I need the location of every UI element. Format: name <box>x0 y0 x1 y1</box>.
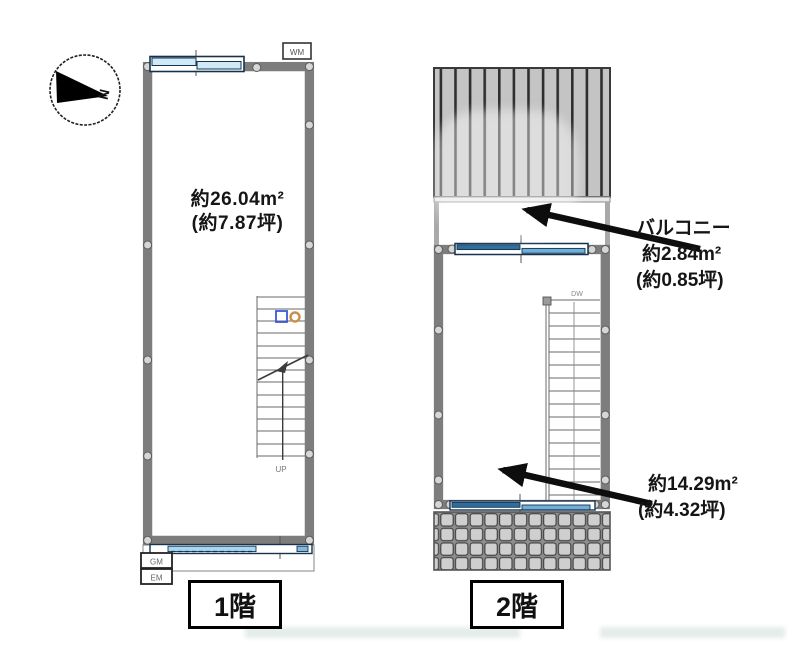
balcony-wall-right <box>605 202 610 249</box>
watermark-text-right <box>600 627 785 638</box>
compass-icon: N <box>42 46 128 132</box>
floor-label-1f-text: 1階 <box>214 585 256 624</box>
balcony-label-group: バルコニー 約2.84m² (約0.85坪) <box>636 216 731 294</box>
floor-label-2f-text: 2階 <box>496 585 538 624</box>
room-area-label-group: 約14.29m² (約4.32坪) <box>638 472 738 524</box>
outer-wall-2f <box>439 250 606 505</box>
floorplan-page: N WM <box>0 0 800 661</box>
stairs-up-label: UP <box>275 465 286 474</box>
pipe-symbol-icon <box>291 313 300 322</box>
balcony-deck <box>434 68 610 197</box>
lower-roof-tiles <box>434 512 610 570</box>
stairs-down-label: DW <box>571 291 583 298</box>
washing-machine-box: WM <box>283 43 311 59</box>
floorplan-2f: DW <box>425 60 620 575</box>
gas-meter-box: GM <box>141 553 172 568</box>
area-label-1f: 約26.04m² (約7.87坪) <box>160 188 315 236</box>
area-1f-sqm: 約26.04m² <box>160 188 315 212</box>
floorplan-1f: WM UP GM EM <box>135 40 330 592</box>
washing-machine-label: WM <box>290 48 305 57</box>
gas-meter-label: GM <box>150 558 163 567</box>
room-area-tsubo: (約4.32坪) <box>638 498 738 524</box>
electric-meter-label: EM <box>151 574 163 583</box>
window-top-1f <box>150 50 244 76</box>
balcony-wall-left <box>434 202 439 249</box>
balcony-rail <box>434 197 610 202</box>
electric-meter-box: EM <box>141 569 172 584</box>
compass-north-label: N <box>95 88 113 101</box>
balcony-label: バルコニー <box>636 216 731 242</box>
floor-label-2f: 2階 <box>470 580 564 629</box>
balcony-area-sqm: 約2.84m² <box>636 242 731 268</box>
floor-label-1f: 1階 <box>188 580 282 629</box>
balcony-area-tsubo: (約0.85坪) <box>636 268 731 294</box>
area-1f-tsubo: (約7.87坪) <box>160 212 315 236</box>
room-area-sqm: 約14.29m² <box>638 472 738 498</box>
